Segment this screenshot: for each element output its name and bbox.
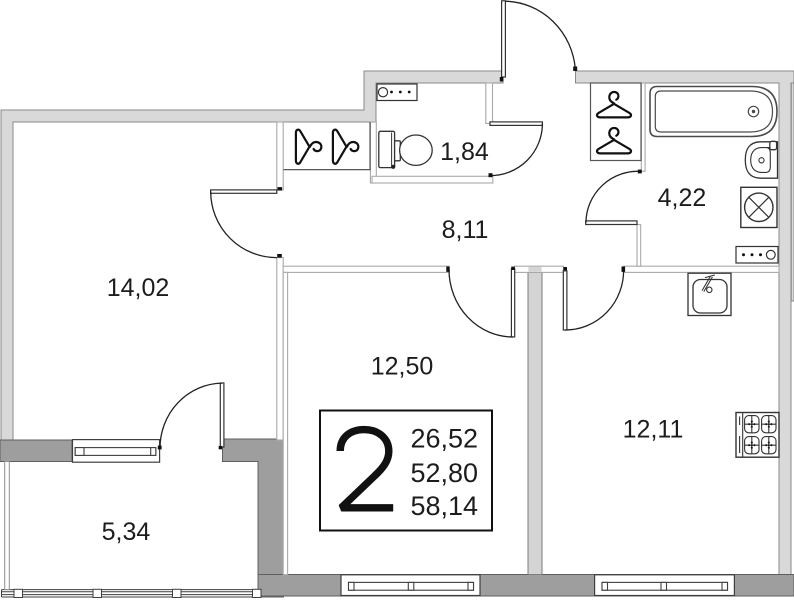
svg-text:1,84: 1,84 [440,138,489,166]
svg-text:52,80: 52,80 [411,458,479,488]
svg-text:14,02: 14,02 [107,274,170,302]
svg-text:4,22: 4,22 [658,184,707,212]
svg-text:8,11: 8,11 [442,216,489,244]
svg-text:12,50: 12,50 [371,353,434,381]
svg-text:58,14: 58,14 [411,491,479,521]
svg-text:5,34: 5,34 [102,518,151,546]
svg-text:12,11: 12,11 [623,416,684,444]
svg-text:26,52: 26,52 [411,424,479,454]
